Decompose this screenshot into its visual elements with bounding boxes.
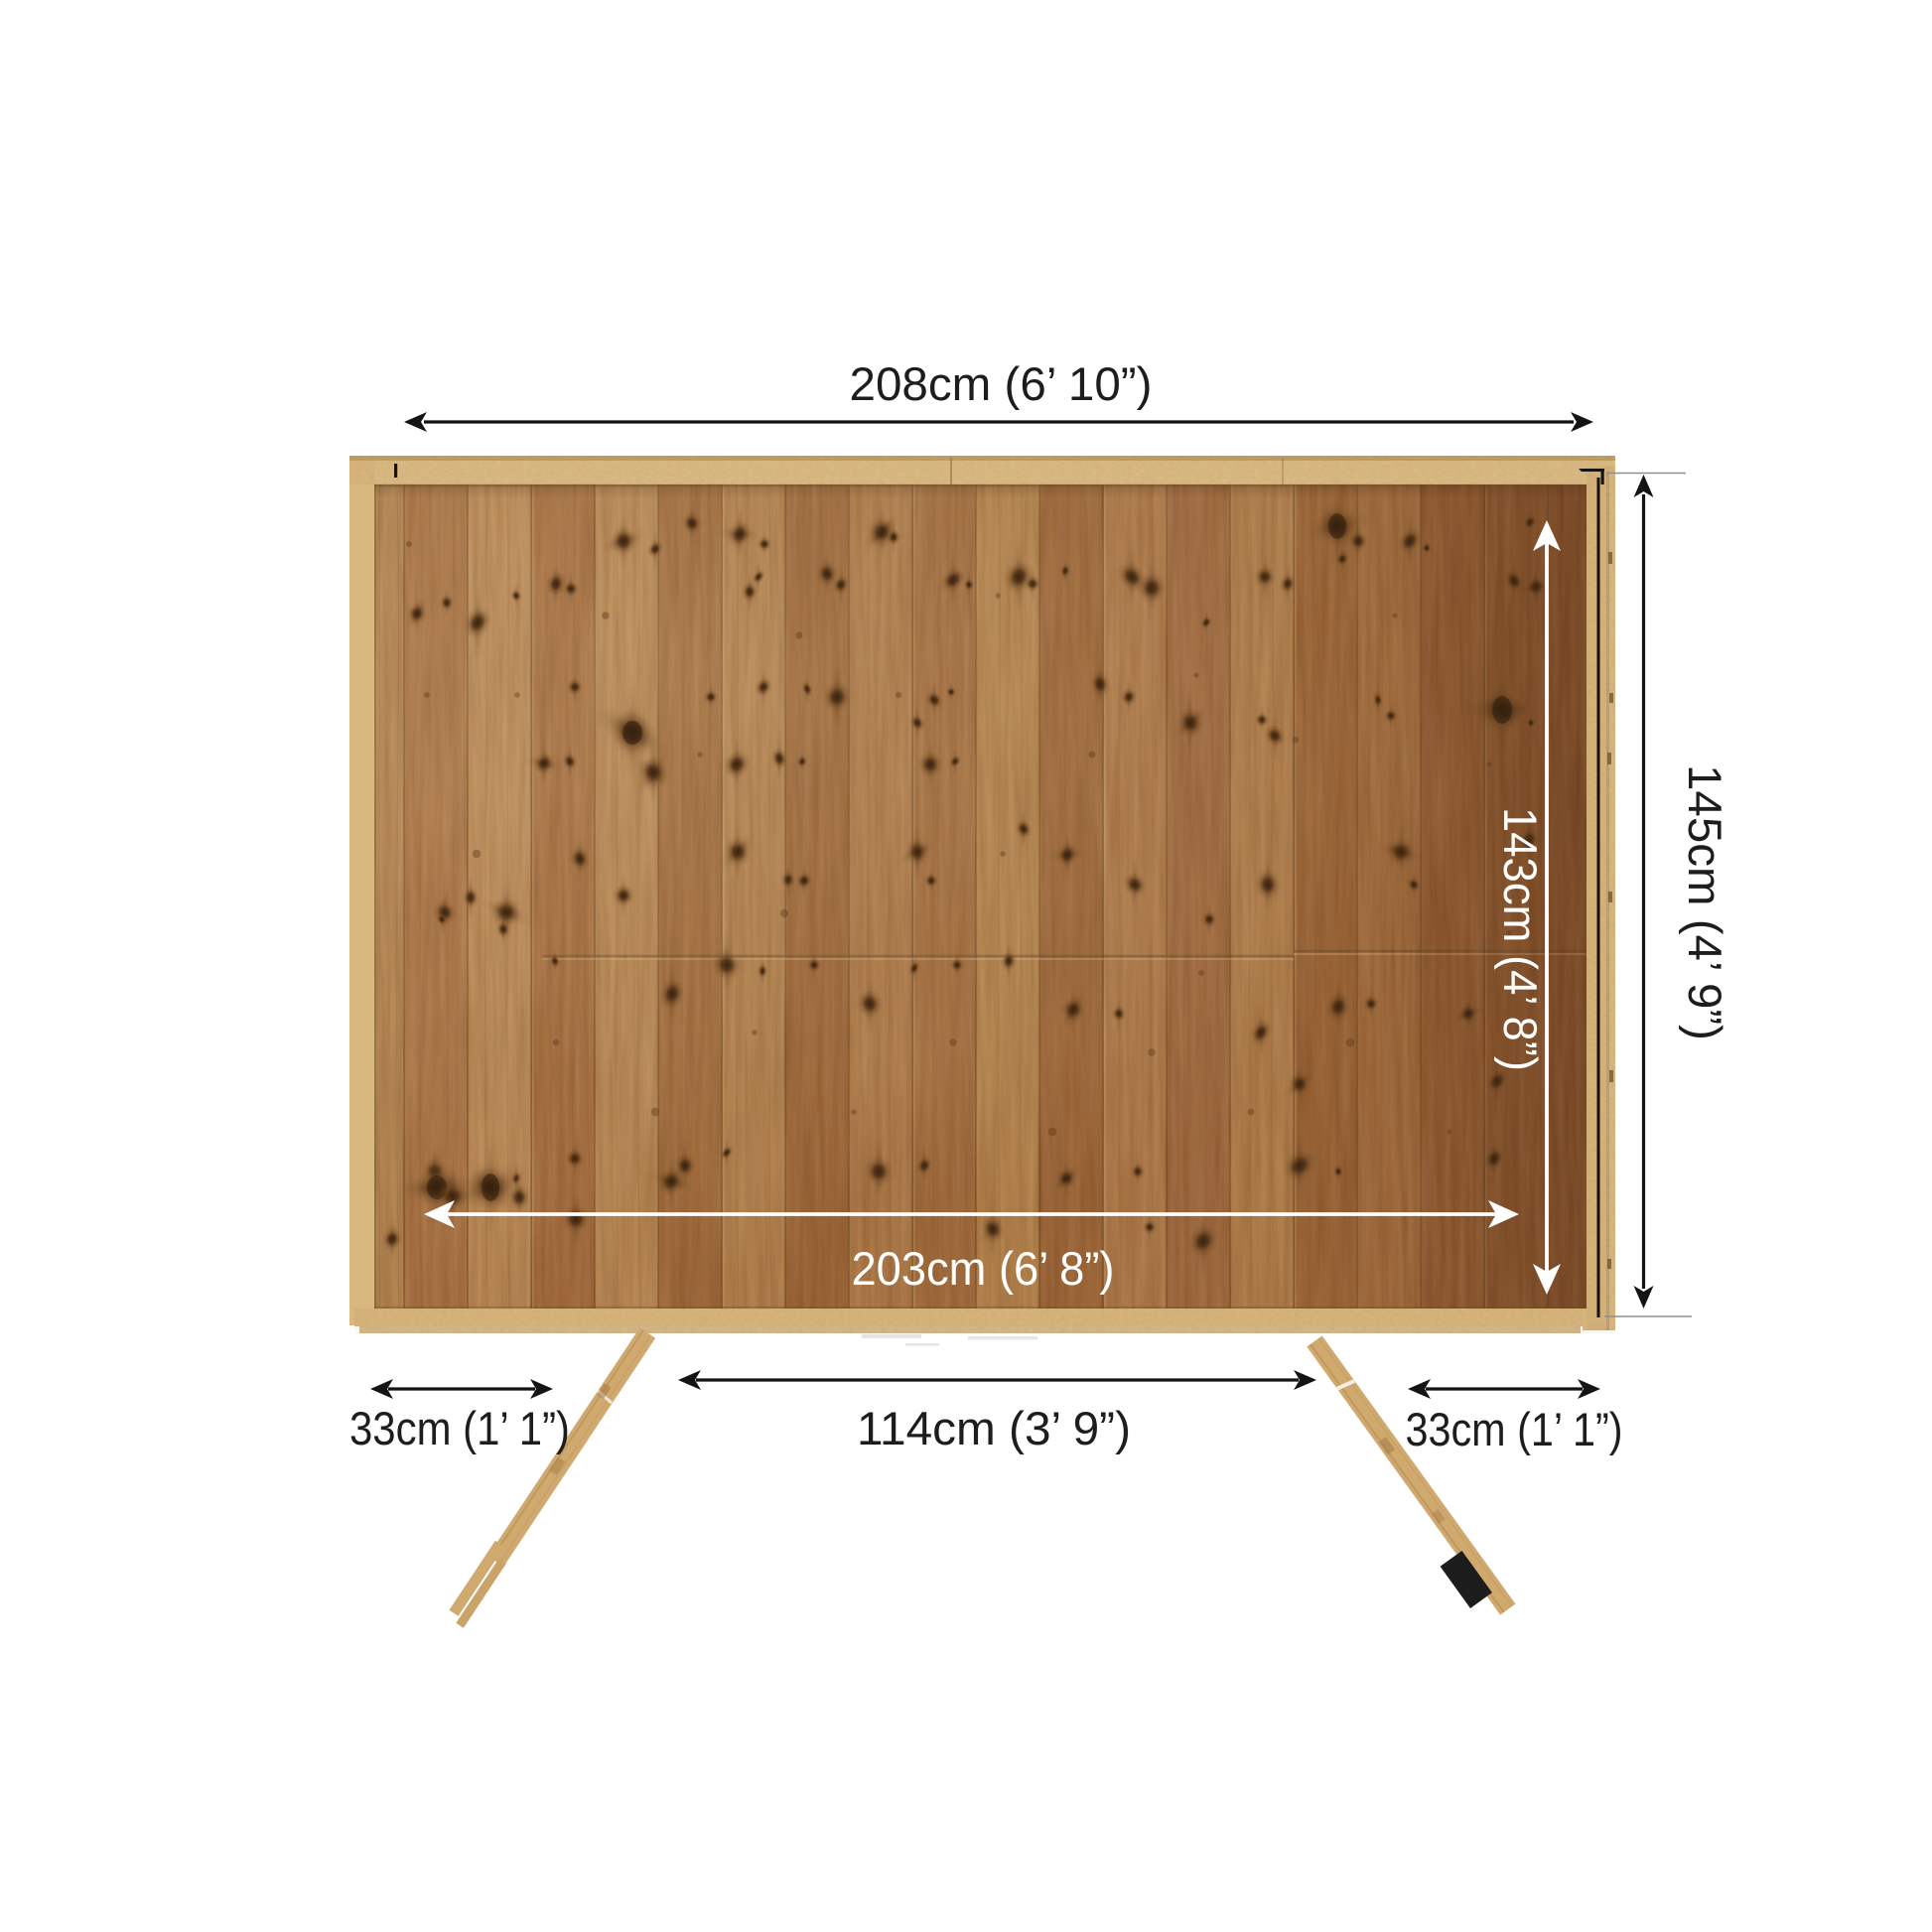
svg-text:114cm (3’ 9”): 114cm (3’ 9”)	[857, 1402, 1131, 1454]
svg-text:33cm (1’ 1”): 33cm (1’ 1”)	[1406, 1403, 1623, 1455]
svg-text:33cm (1’ 1”): 33cm (1’ 1”)	[349, 1402, 570, 1454]
svg-text:208cm (6’ 10”): 208cm (6’ 10”)	[850, 357, 1153, 410]
svg-text:145cm (4’ 9”): 145cm (4’ 9”)	[1679, 764, 1731, 1040]
svg-text:143cm (4’ 8”): 143cm (4’ 8”)	[1494, 807, 1547, 1071]
svg-text:203cm (6’ 8”): 203cm (6’ 8”)	[852, 1242, 1115, 1295]
